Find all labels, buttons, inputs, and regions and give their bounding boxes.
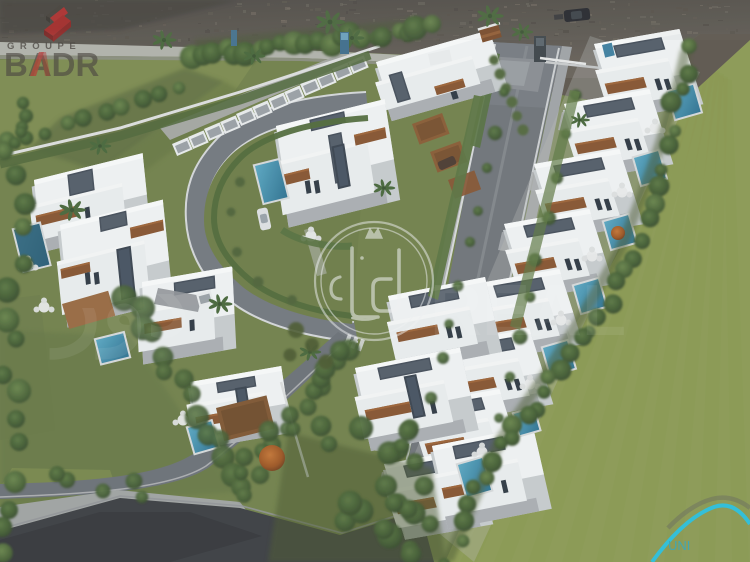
svg-text:BADR: BADR: [4, 46, 99, 83]
svg-text:UNI: UNI: [668, 538, 690, 553]
svg-text:دور: دور: [49, 250, 189, 360]
svg-text:REAL: REAL: [430, 271, 626, 351]
